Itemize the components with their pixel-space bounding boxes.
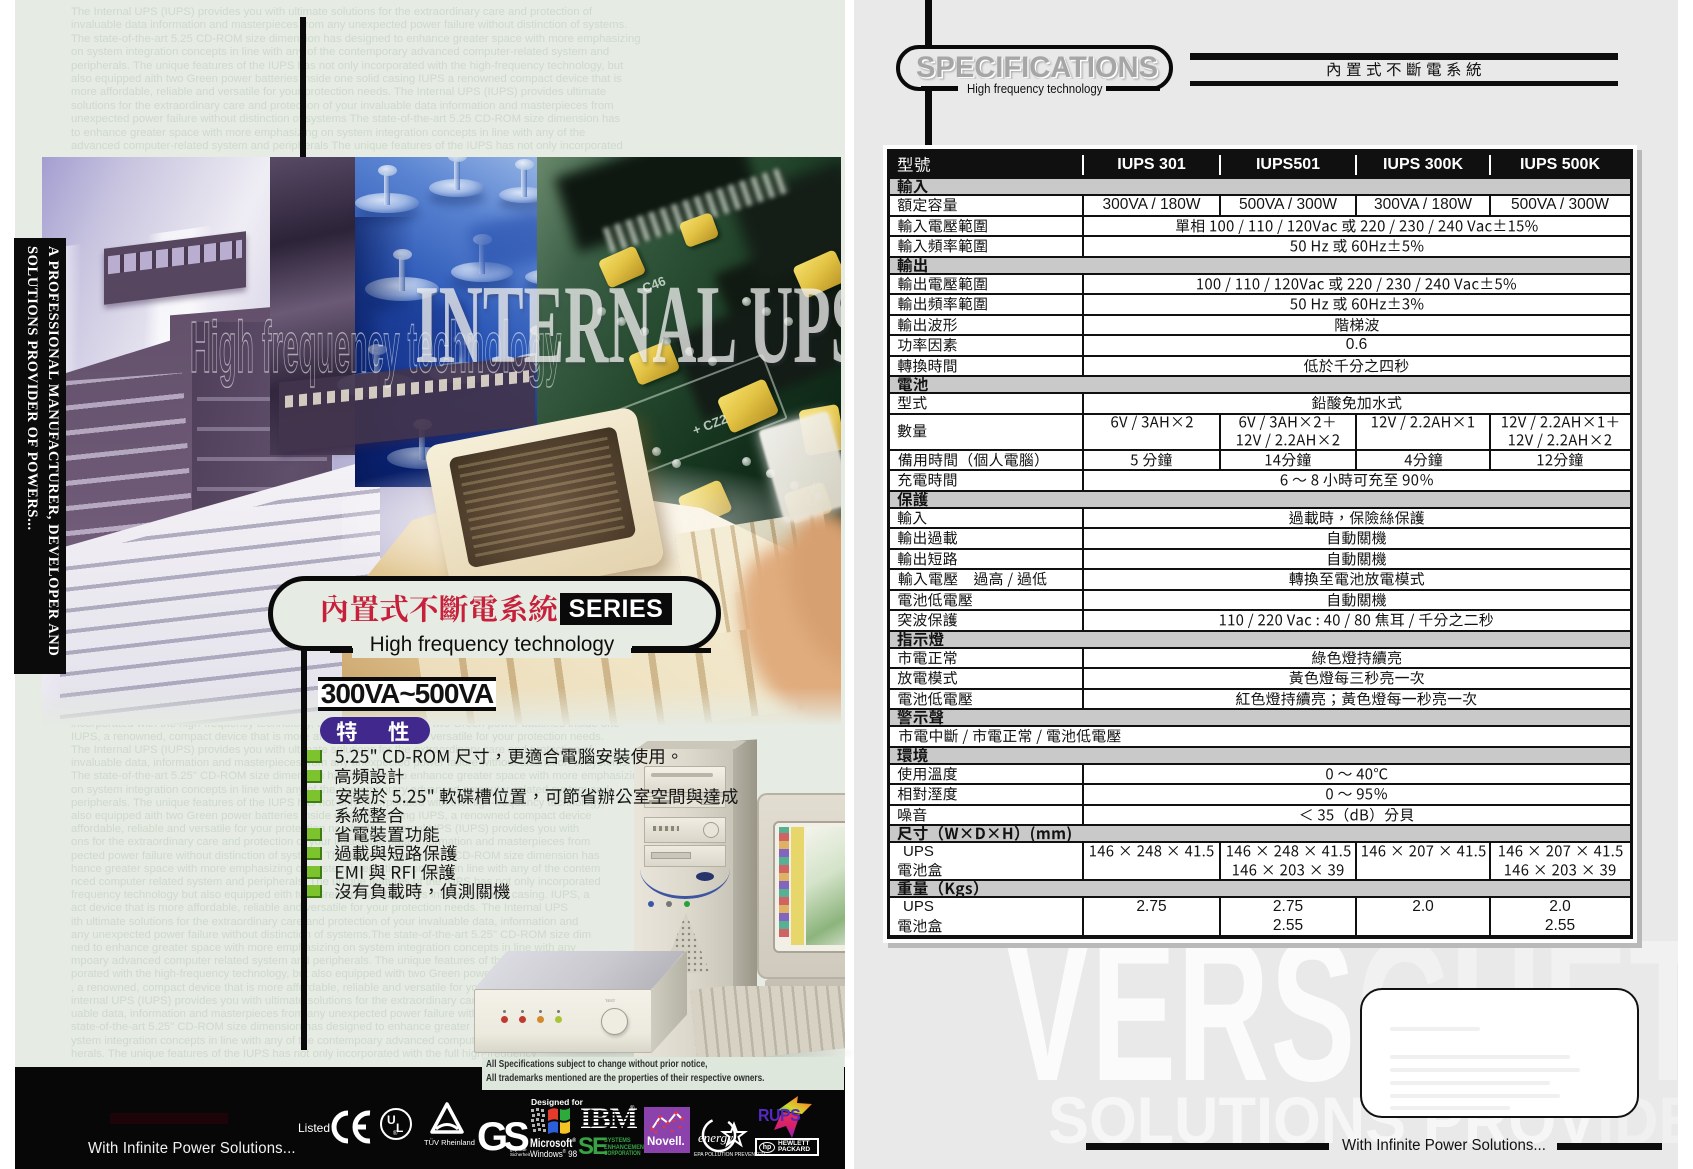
svg-text:RUPS: RUPS — [758, 1105, 800, 1125]
svg-text:energy: energy — [698, 1130, 733, 1145]
